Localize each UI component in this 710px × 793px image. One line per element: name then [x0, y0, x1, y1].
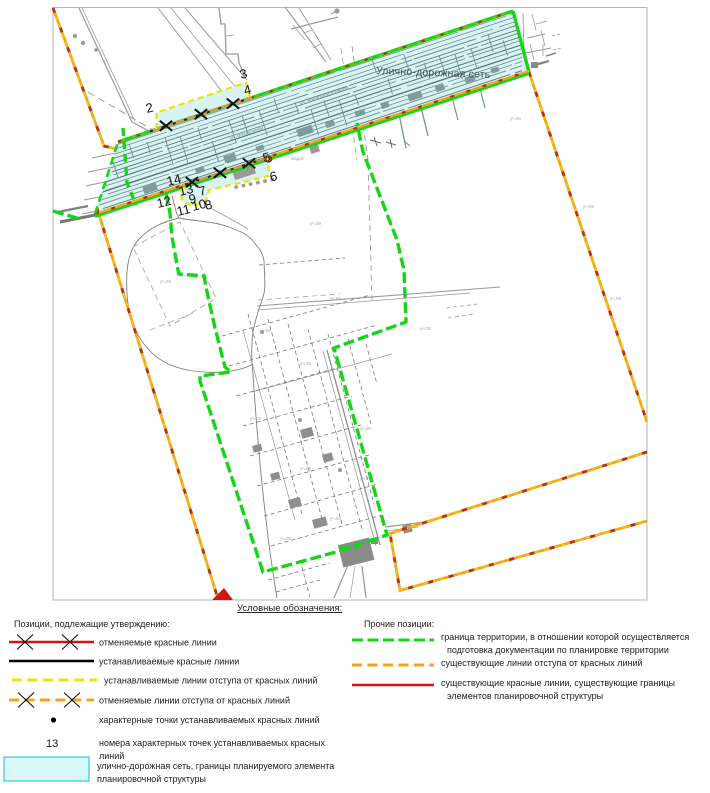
svg-text:подготовка документации по пла: подготовка документации по планировке те…: [447, 645, 669, 655]
svg-text:Прочие позиции:: Прочие позиции:: [364, 619, 434, 629]
svg-text:линий: линий: [99, 751, 124, 761]
svg-text:уч.09: уч.09: [610, 296, 621, 301]
svg-text:уч.09: уч.09: [420, 326, 431, 331]
svg-text:уч.09: уч.09: [330, 516, 341, 521]
svg-text:уч.09: уч.09: [310, 221, 321, 226]
svg-text:планировочной структуры: планировочной структуры: [97, 774, 206, 784]
svg-text:элементов планировочной структ: элементов планировочной структуры: [447, 691, 603, 701]
svg-text:Условные обозначения:: Условные обозначения:: [237, 603, 342, 614]
svg-text:существующие красные линии, су: существующие красные линии, существующие…: [441, 678, 675, 688]
svg-text:уч.09: уч.09: [300, 466, 311, 471]
svg-text:номера характерных точек устан: номера характерных точек устанавливаемых…: [99, 738, 326, 748]
svg-text:устанавливаемые красные линии: устанавливаемые красные линии: [99, 657, 239, 667]
svg-text:отменяемые линии отступа от кр: отменяемые линии отступа от красных лини…: [99, 696, 290, 706]
svg-text:существующие линии отступа от: существующие линии отступа от красных ли…: [441, 658, 643, 668]
svg-text:13: 13: [46, 738, 58, 750]
svg-text:Позиции, подлежащие утверждени: Позиции, подлежащие утверждению:: [14, 619, 170, 629]
svg-text:уч.09: уч.09: [260, 328, 271, 333]
svg-text:уч.09: уч.09: [250, 416, 261, 421]
svg-text:уч.09: уч.09: [300, 361, 311, 366]
svg-text:уч.09: уч.09: [330, 296, 341, 301]
svg-text:мадал: мадал: [291, 156, 305, 161]
svg-text:характерные точки устанавливае: характерные точки устанавливаемых красны…: [99, 715, 320, 725]
svg-text:улично-дорожная сеть, границы: улично-дорожная сеть, границы планируемо…: [97, 761, 334, 771]
svg-text:граница территории, в отношени: граница территории, в отношении которой …: [441, 632, 689, 642]
svg-text:уч.09: уч.09: [280, 536, 291, 541]
svg-text:устанавливаемые линии отступа: устанавливаемые линии отступа от красных…: [104, 676, 317, 686]
svg-text:уч.09: уч.09: [583, 204, 594, 209]
svg-text:отменяемые красные линии: отменяемые красные линии: [99, 638, 217, 648]
svg-text:уч.09: уч.09: [360, 426, 371, 431]
svg-text:уч.09: уч.09: [160, 279, 171, 284]
svg-text:уч.09: уч.09: [510, 116, 521, 121]
